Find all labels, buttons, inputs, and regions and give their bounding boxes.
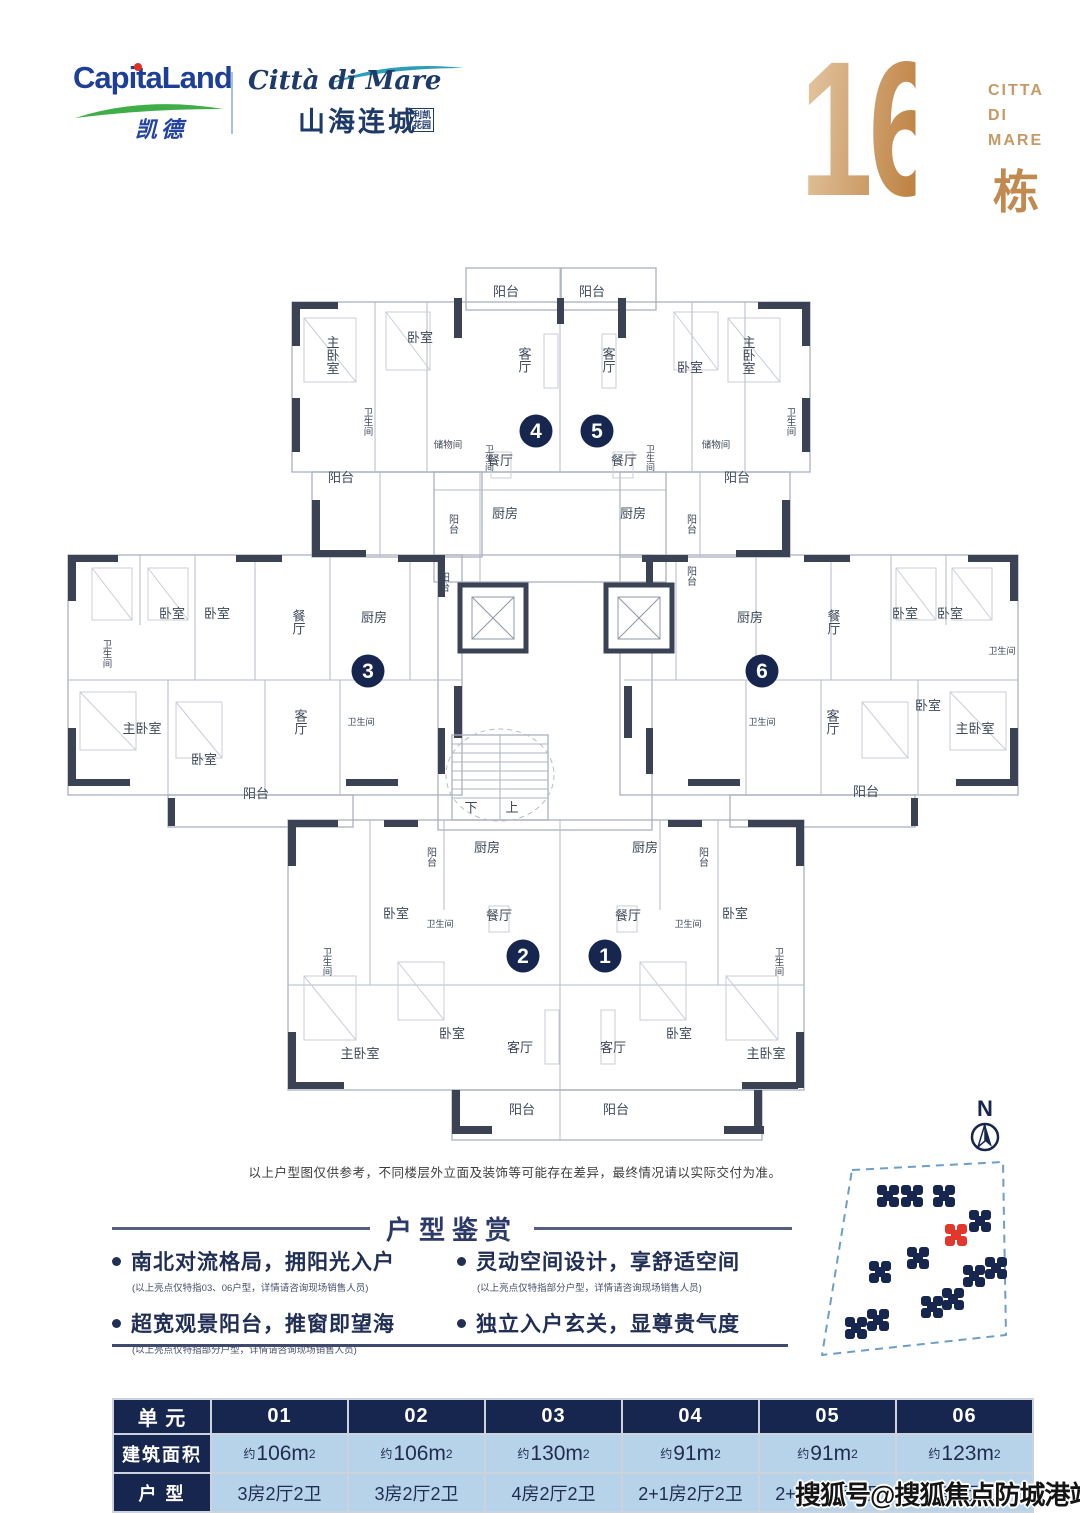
room-label: 卫生间 bbox=[101, 640, 113, 669]
bullet-icon bbox=[457, 1319, 466, 1328]
table-type-cell: 2+1房2厅2卫 bbox=[623, 1474, 758, 1511]
table-area-cell: 约91m2 bbox=[760, 1435, 895, 1472]
feature-text: 独立入户玄关，显尊贵气度 bbox=[476, 1308, 740, 1338]
room-label: 客厅 bbox=[825, 708, 840, 735]
room-label: 卧室 bbox=[191, 752, 217, 767]
table-area-cell: 约91m2 bbox=[623, 1435, 758, 1472]
unit-number-circles: 123456 bbox=[352, 415, 779, 973]
feature-note: (以上亮点仅特指部分户型，详情请咨询现场销售人员) bbox=[477, 1280, 772, 1294]
feature-item: 超宽观景阳台，推窗即望海 (以上亮点仅特指部分户型，详情请咨询现场销售人员) bbox=[112, 1308, 457, 1356]
map-building bbox=[845, 1317, 867, 1339]
room-label: 阳台 bbox=[579, 284, 605, 299]
stairs-up-label: 上 bbox=[505, 800, 518, 815]
room-label: 卧室 bbox=[892, 606, 918, 621]
room-label: 客厅 bbox=[293, 708, 308, 735]
room-label: 餐厅 bbox=[291, 608, 306, 635]
room-label: 卧室 bbox=[383, 906, 409, 921]
table-row-label: 户 型 bbox=[114, 1474, 210, 1511]
feature-text: 超宽观景阳台，推窗即望海 bbox=[131, 1308, 395, 1338]
room-label: 主卧室 bbox=[741, 336, 756, 375]
room-label: 阳台 bbox=[853, 784, 879, 799]
unit-circle-number: 1 bbox=[599, 945, 611, 968]
map-building bbox=[867, 1309, 889, 1331]
map-buildings bbox=[845, 1185, 1007, 1339]
room-label: 厨房 bbox=[492, 506, 518, 521]
map-building-highlight bbox=[945, 1224, 967, 1246]
table-unit-header: 02 bbox=[349, 1400, 484, 1433]
room-label: 餐厅 bbox=[826, 608, 841, 635]
room-label: 卫生间 bbox=[362, 408, 374, 437]
room-labels: 阳台阳台主卧室卧室客厅客厅卧室主卧室卫生间卫生间储物间储物间卫生间卫生间餐厅餐厅… bbox=[101, 284, 1016, 1117]
bullet-icon bbox=[112, 1319, 121, 1328]
citta-seal-line1: 利凯 bbox=[413, 110, 431, 120]
room-label: 客厅 bbox=[600, 1040, 626, 1055]
room-label: 阳台 bbox=[328, 470, 354, 485]
citta-en-stack: CITTA DI MARE bbox=[988, 78, 1068, 153]
room-label: 卧室 bbox=[407, 330, 433, 345]
room-label: 主卧室 bbox=[955, 721, 994, 736]
unit-circle-number: 5 bbox=[591, 420, 603, 443]
room-label: 厨房 bbox=[737, 610, 763, 625]
feature-item: 灵动空间设计，享舒适空间 (以上亮点仅特指部分户型，详情请咨询现场销售人员) bbox=[457, 1246, 772, 1294]
room-label: 厨房 bbox=[620, 506, 646, 521]
site-map: N bbox=[790, 1080, 1070, 1390]
room-label: 餐厅 bbox=[487, 453, 513, 468]
table-area-cell: 约123m2 bbox=[897, 1435, 1032, 1472]
building-label: 栋 bbox=[986, 156, 1046, 222]
room-label: 卧室 bbox=[666, 1026, 692, 1041]
room-label: 餐厅 bbox=[611, 453, 637, 468]
feature-item: 南北对流格局，拥阳光入户 (以上亮点仅特指03、06户型，详情请咨询现场销售人员… bbox=[112, 1246, 457, 1294]
disclaimer-text: 以上户型图仅供参考，不同楼层外立面及装饰等可能存在差异，最终情况请以实际交付为准… bbox=[180, 1162, 850, 1181]
room-label: 储物间 bbox=[702, 439, 731, 451]
floor-plan: 下 上 阳台阳台主卧室卧室客厅客厅卧室主卧室卫生间卫生间储物间储物间卫生间卫生间… bbox=[0, 250, 1080, 1165]
capitaland-red-dot-icon bbox=[134, 63, 142, 71]
table-type-cell: 3房2厅2卫 bbox=[349, 1474, 484, 1511]
citta-seal-line2: 花园 bbox=[413, 120, 431, 130]
room-label: 卧室 bbox=[204, 606, 230, 621]
room-label: 阳台 bbox=[509, 1102, 535, 1117]
feature-text: 灵动空间设计，享舒适空间 bbox=[476, 1246, 740, 1276]
section-divider bbox=[112, 1344, 788, 1347]
table-row-label: 建筑面积 bbox=[114, 1435, 210, 1472]
room-label: 卫生间 bbox=[321, 948, 333, 977]
elevator-right bbox=[606, 585, 672, 651]
feature-item: 独立入户玄关，显尊贵气度 bbox=[457, 1308, 772, 1356]
room-label: 阳台 bbox=[724, 470, 750, 485]
compass-icon: N bbox=[972, 1096, 998, 1150]
room-label: 卧室 bbox=[439, 1026, 465, 1041]
capitaland-wordmark: CapitaLand bbox=[73, 60, 233, 96]
room-label: 储物间 bbox=[434, 439, 463, 451]
stairs-down-label: 下 bbox=[464, 800, 477, 815]
citta-en-line1: CITTA bbox=[988, 78, 1068, 103]
table-area-cell: 约106m2 bbox=[212, 1435, 347, 1472]
table-unit-header: 01 bbox=[212, 1400, 347, 1433]
room-label: 卧室 bbox=[159, 606, 185, 621]
map-building bbox=[942, 1288, 964, 1310]
unit-circle-number: 3 bbox=[362, 660, 374, 683]
room-label: 卫生间 bbox=[773, 948, 785, 977]
unit-circle-number: 2 bbox=[517, 945, 529, 968]
map-building bbox=[933, 1185, 955, 1207]
map-building bbox=[985, 1257, 1007, 1279]
table-unit-header: 04 bbox=[623, 1400, 758, 1433]
room-label: 卫生间 bbox=[426, 918, 453, 929]
table-type-cell: 3房2厅2卫 bbox=[212, 1474, 347, 1511]
section-rule-left bbox=[112, 1227, 370, 1230]
map-building bbox=[877, 1185, 899, 1207]
room-label: 餐厅 bbox=[615, 908, 641, 923]
feature-list: 南北对流格局，拥阳光入户 (以上亮点仅特指03、06户型，详情请咨询现场销售人员… bbox=[112, 1246, 772, 1356]
table-area-cell: 约106m2 bbox=[349, 1435, 484, 1472]
citta-script-wordmark: Città di Mare bbox=[248, 66, 441, 96]
citta-di-mare-logo: Città di Mare 山海连城 利凯 花园 bbox=[248, 58, 478, 158]
bullet-icon bbox=[457, 1257, 466, 1266]
building-number: 16 bbox=[800, 36, 916, 226]
room-label: 厨房 bbox=[361, 610, 387, 625]
feature-note: (以上亮点仅特指03、06户型，详情请咨询现场销售人员) bbox=[132, 1280, 457, 1294]
elevator-left bbox=[460, 585, 526, 651]
room-label: 主卧室 bbox=[122, 721, 161, 736]
table-unit-header: 06 bbox=[897, 1400, 1032, 1433]
citta-en-line2: DI bbox=[988, 103, 1068, 128]
table-type-cell: 4房2厅2卫 bbox=[486, 1474, 621, 1511]
map-building bbox=[901, 1185, 923, 1207]
compass-n-label: N bbox=[977, 1096, 993, 1121]
watermark: 搜狐号@搜狐焦点防城港站 bbox=[795, 1475, 1080, 1512]
room-label: 客厅 bbox=[507, 1040, 533, 1055]
room-label: 阳台 bbox=[685, 566, 697, 587]
room-label: 阳台 bbox=[697, 847, 709, 868]
section-title: 户型鉴赏 bbox=[386, 1210, 518, 1247]
room-label: 客厅 bbox=[517, 346, 532, 373]
map-building bbox=[907, 1247, 929, 1269]
capitaland-logo: CapitaLand 凯德 bbox=[73, 60, 233, 160]
bullet-icon bbox=[112, 1257, 121, 1266]
map-building bbox=[869, 1261, 891, 1283]
room-label: 卫生间 bbox=[785, 408, 797, 437]
room-label: 厨房 bbox=[632, 840, 658, 855]
citta-en-line3: MARE bbox=[988, 128, 1068, 153]
section-rule-right bbox=[534, 1227, 792, 1230]
citta-chinese-wordmark: 山海连城 bbox=[298, 100, 418, 139]
room-label: 厨房 bbox=[474, 840, 500, 855]
room-label: 卫生间 bbox=[748, 716, 775, 727]
room-label: 阳台 bbox=[493, 284, 519, 299]
room-label: 阳台 bbox=[603, 1102, 629, 1117]
table-area-cell: 约130m2 bbox=[486, 1435, 621, 1472]
room-label: 卧室 bbox=[937, 606, 963, 621]
map-building bbox=[963, 1265, 985, 1287]
room-label: 阳台 bbox=[685, 514, 697, 535]
room-label: 卧室 bbox=[915, 698, 941, 713]
room-label: 卫生间 bbox=[645, 445, 655, 473]
table-unit-header: 03 bbox=[486, 1400, 621, 1433]
capitaland-chinese: 凯德 bbox=[135, 112, 187, 144]
room-label: 客厅 bbox=[601, 346, 616, 373]
room-label: 卫生间 bbox=[674, 918, 701, 929]
room-label: 阳台 bbox=[438, 572, 450, 593]
room-label: 卫生间 bbox=[347, 716, 374, 727]
table-row-label: 单 元 bbox=[114, 1400, 210, 1433]
section-header: 户型鉴赏 bbox=[112, 1210, 792, 1247]
room-label: 主卧室 bbox=[325, 336, 340, 375]
room-label: 主卧室 bbox=[746, 1046, 785, 1061]
table-unit-header: 05 bbox=[760, 1400, 895, 1433]
feature-text: 南北对流格局，拥阳光入户 bbox=[131, 1246, 395, 1276]
room-label: 卧室 bbox=[722, 906, 748, 921]
citta-seal: 利凯 花园 bbox=[410, 108, 434, 132]
map-building bbox=[969, 1210, 991, 1232]
room-label: 卫生间 bbox=[988, 645, 1015, 656]
room-label: 餐厅 bbox=[486, 908, 512, 923]
unit-circle-number: 4 bbox=[530, 420, 542, 443]
room-label: 主卧室 bbox=[340, 1046, 379, 1061]
room-label: 卧室 bbox=[677, 360, 703, 375]
unit-circle-number: 6 bbox=[756, 660, 768, 683]
room-label: 阳台 bbox=[425, 847, 437, 868]
room-label: 阳台 bbox=[243, 786, 269, 801]
room-label: 阳台 bbox=[447, 514, 459, 535]
map-building bbox=[921, 1296, 943, 1318]
